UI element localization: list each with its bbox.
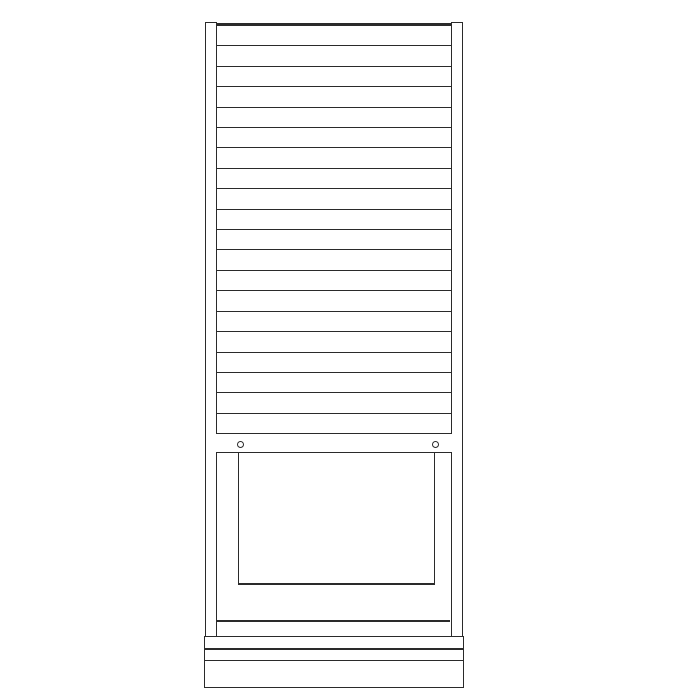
roller-shutter: [216, 23, 452, 434]
shutter-slat: [216, 393, 452, 413]
plinth-groove-line: [205, 648, 463, 650]
interior-bottom-edge: [217, 620, 450, 622]
cabinet-front-view-drawing: [205, 22, 463, 688]
access-panel: [238, 453, 435, 585]
shutter-slat: [216, 148, 452, 168]
plinth-base: [204, 636, 464, 688]
screw-rail: [216, 434, 452, 453]
shutter-slat: [216, 414, 452, 434]
shutter-slat: [216, 291, 452, 311]
shutter-slat: [216, 189, 452, 209]
shutter-slat: [216, 373, 452, 393]
shutter-slat: [216, 46, 452, 66]
drawing-canvas: [0, 0, 700, 700]
shutter-slat: [216, 271, 452, 291]
shutter-slat: [216, 250, 452, 270]
shutter-slat: [216, 210, 452, 230]
shutter-slat: [216, 87, 452, 107]
shutter-slat: [216, 169, 452, 189]
plinth-groove-line: [205, 660, 463, 662]
cabinet-right-side-post: [451, 22, 463, 637]
shutter-slat: [216, 108, 452, 128]
shutter-slat: [216, 312, 452, 332]
shutter-slat: [216, 353, 452, 373]
screw-icon: [432, 441, 439, 448]
shutter-slat: [216, 128, 452, 148]
shutter-slat: [216, 26, 452, 46]
shutter-slat: [216, 67, 452, 87]
shutter-slat: [216, 230, 452, 250]
shutter-slat: [216, 332, 452, 352]
screw-icon: [237, 441, 244, 448]
